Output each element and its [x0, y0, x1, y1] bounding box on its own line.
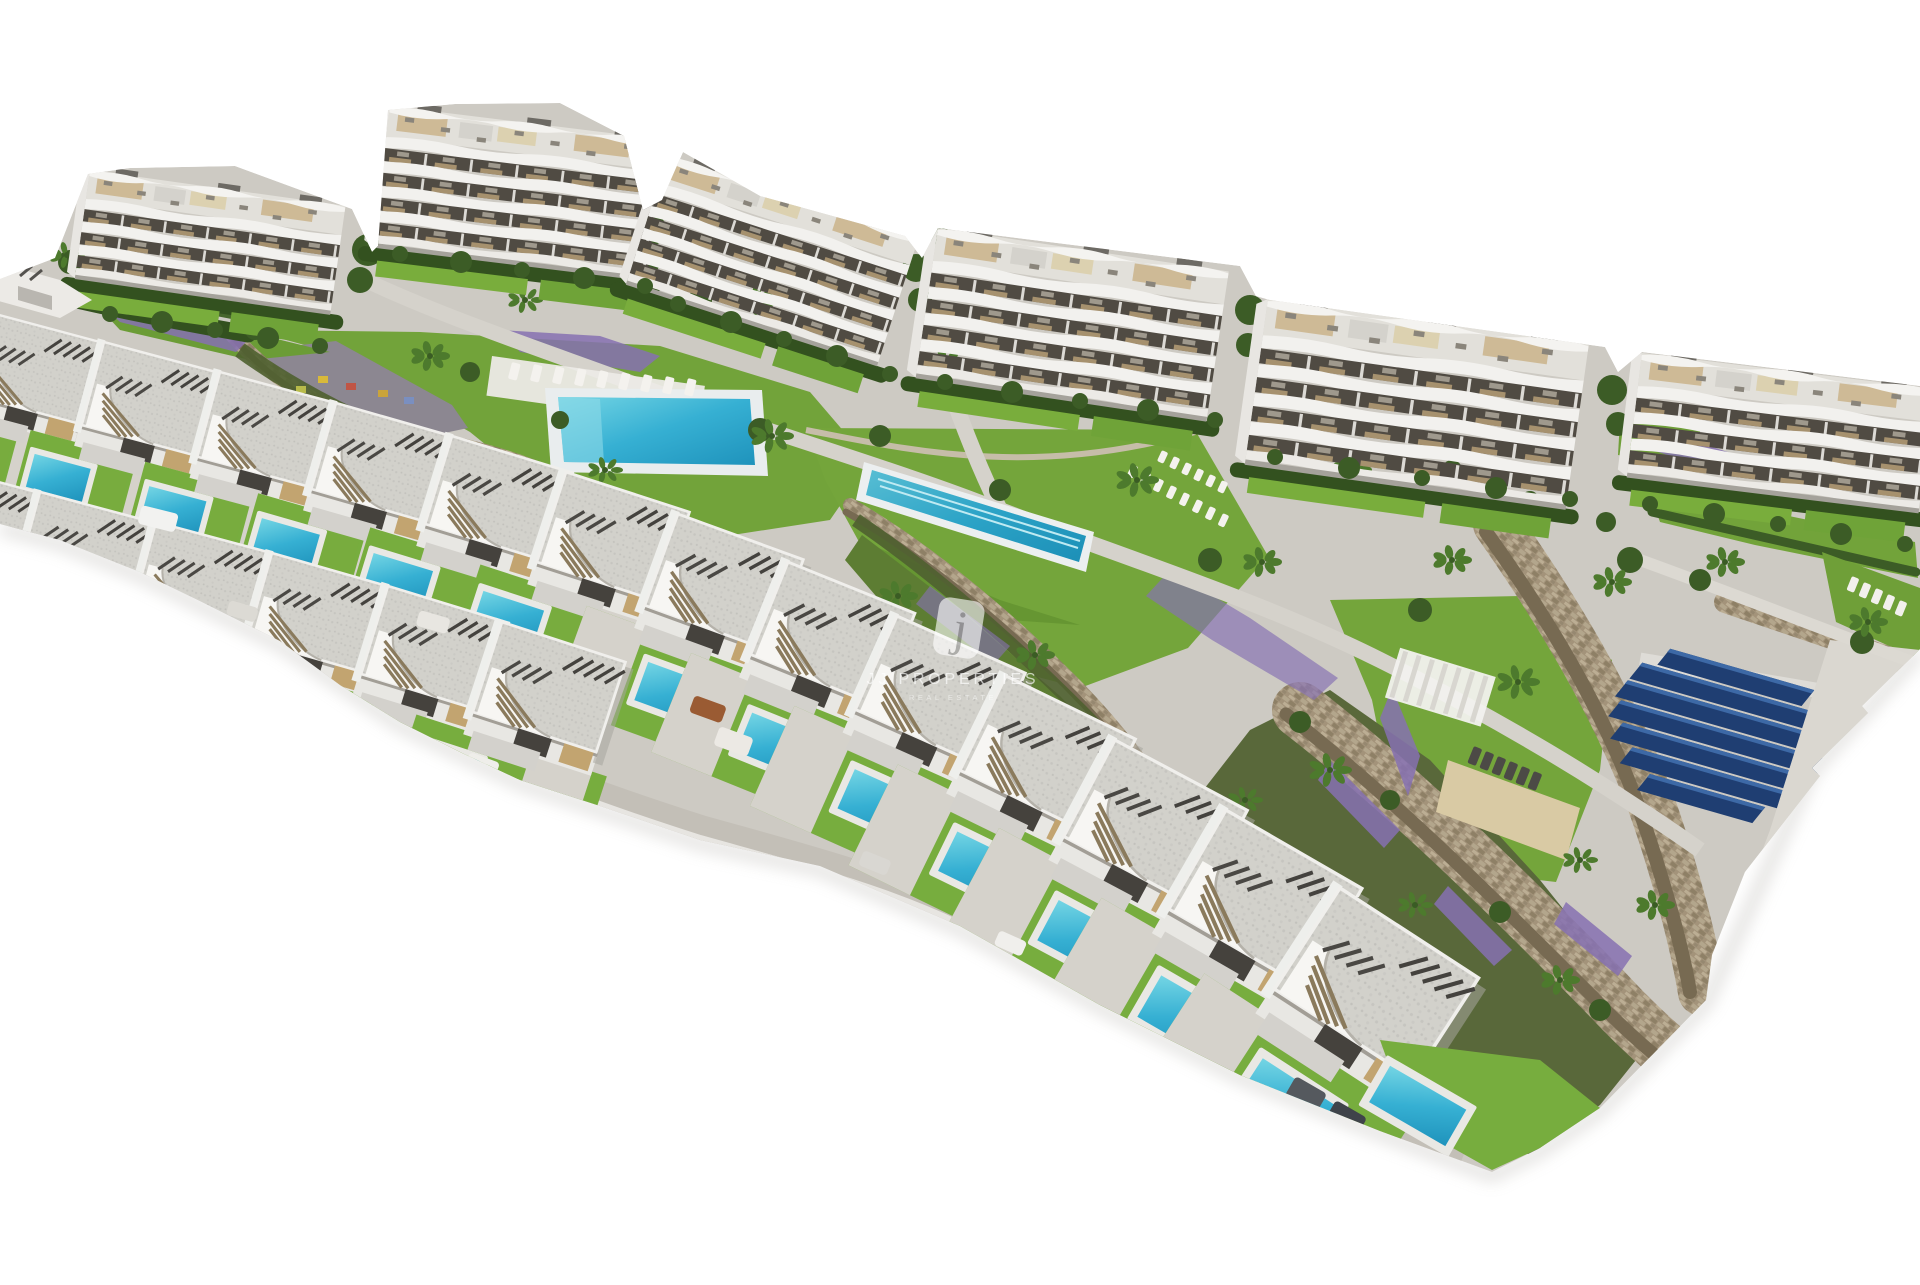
- svg-text:REAL ESTATE: REAL ESTATE: [909, 693, 997, 702]
- svg-text:JJ PROPERTIES: JJ PROPERTIES: [867, 671, 1040, 688]
